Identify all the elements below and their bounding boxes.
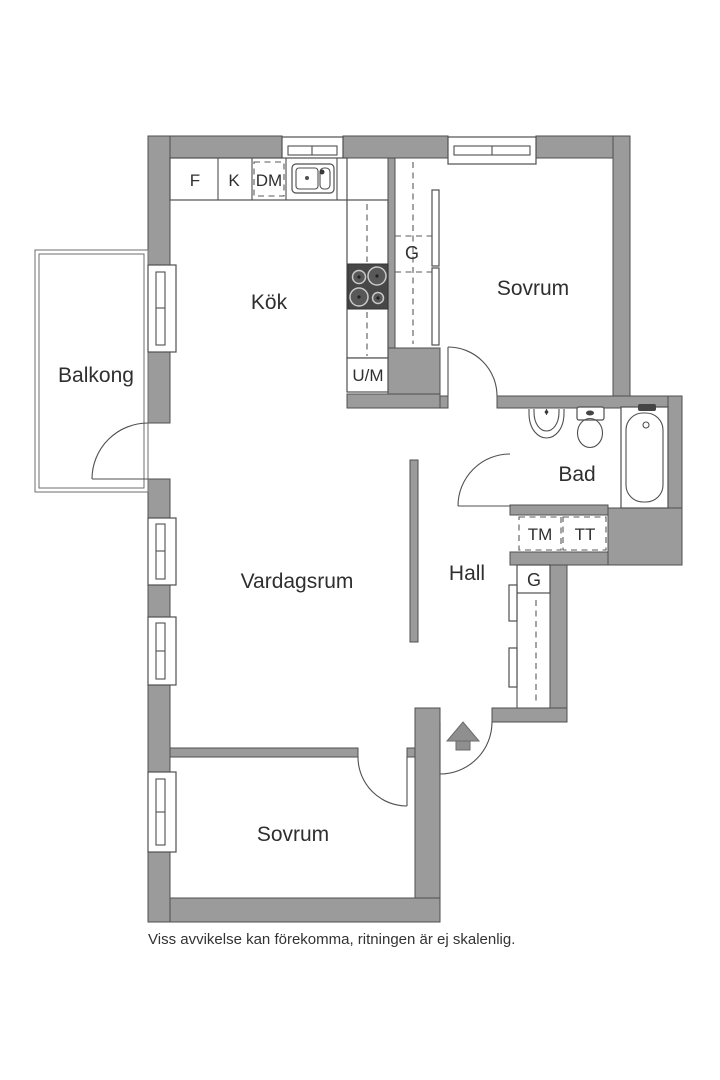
- room-label-kok: Kök: [251, 291, 288, 314]
- wall-segment: [550, 565, 567, 722]
- wall-segment: [148, 685, 170, 772]
- room-label-vardagsrum: Vardagsrum: [241, 570, 354, 593]
- wall-segment: [347, 394, 440, 408]
- wall-segment: [608, 508, 682, 565]
- room-label-hall: Hall: [449, 562, 485, 585]
- sliding-door: [432, 268, 439, 345]
- wall-segment: [148, 852, 170, 922]
- bedroom-top-door: [448, 347, 497, 396]
- window: [448, 137, 536, 164]
- wall-segment: [343, 136, 448, 158]
- entrance-arrow-icon: [447, 722, 479, 750]
- wall-segment: [510, 552, 608, 565]
- room-label-balkong: Balkong: [58, 364, 134, 387]
- wall-segment: [613, 136, 630, 408]
- bathroom-sink-icon: [529, 409, 564, 438]
- floor-plan: Balkong Kök Sovrum Bad Hall Vardagsrum S…: [0, 0, 720, 1080]
- bathtub-icon: [621, 404, 668, 508]
- room-label-bad: Bad: [558, 463, 595, 486]
- wall-segment: [148, 585, 170, 617]
- sliding-door: [509, 648, 517, 687]
- window: [148, 265, 176, 352]
- appliance-label-freezer: F: [190, 171, 200, 190]
- closet-label-top: G: [405, 243, 419, 263]
- wall-segment: [415, 708, 440, 922]
- wall-segment: [148, 136, 170, 265]
- kitchen-sink-icon: [292, 164, 334, 193]
- room-label-sovrum-top: Sovrum: [497, 277, 569, 300]
- wall-segment: [510, 505, 608, 515]
- window: [148, 617, 176, 685]
- wall-segment: [148, 898, 440, 922]
- room-label-sovrum-bottom: Sovrum: [257, 823, 329, 846]
- toilet-icon: [577, 407, 604, 448]
- appliance-label-washer: TM: [528, 525, 553, 544]
- stove-icon: [348, 264, 388, 309]
- bathroom-door: [458, 454, 510, 506]
- partition-wall: [410, 460, 418, 642]
- closet-label-hall: G: [527, 570, 541, 590]
- wall-segment: [668, 396, 682, 508]
- wall-segment: [170, 748, 358, 757]
- wall-segment: [407, 748, 415, 757]
- wall-segment: [148, 479, 170, 518]
- sliding-door: [432, 190, 439, 266]
- balcony-door: [92, 423, 148, 479]
- window: [148, 518, 176, 585]
- wall-segment: [492, 708, 567, 722]
- wall-segment: [388, 158, 395, 348]
- sliding-door: [509, 585, 517, 621]
- appliance-label-oven-micro: U/M: [352, 366, 383, 385]
- appliance-label-dryer: TT: [575, 525, 596, 544]
- wall-segment: [388, 348, 440, 394]
- bedroom-bottom-door: [358, 757, 407, 806]
- appliance-label-fridge: K: [228, 171, 240, 190]
- wall-segment: [148, 352, 170, 423]
- wall-segment: [440, 396, 448, 408]
- window: [148, 772, 176, 852]
- disclaimer-text: Viss avvikelse kan förekomma, ritningen …: [148, 931, 515, 948]
- appliance-label-dishwasher: DM: [256, 171, 282, 190]
